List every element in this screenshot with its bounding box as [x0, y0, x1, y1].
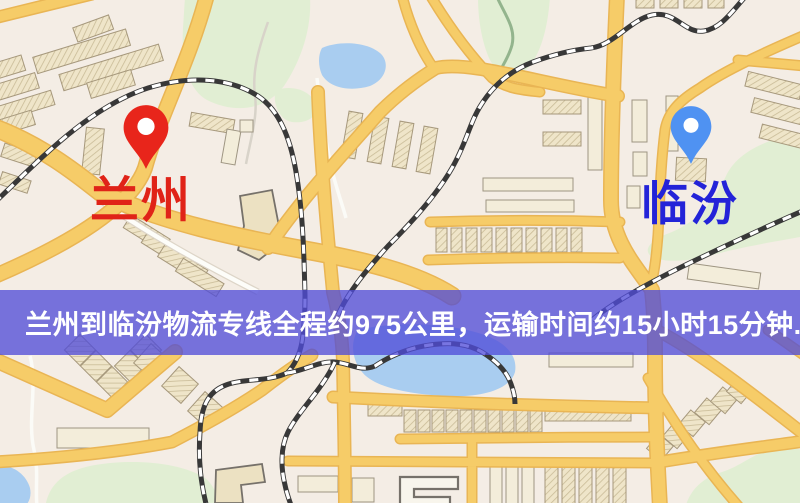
route-info-banner: 兰州到临汾物流专线全程约975公里，运输时间约15小时15分钟.: [0, 290, 800, 355]
origin-city-label: 兰州: [90, 177, 192, 226]
map-graphic: [0, 0, 800, 503]
route-info-text: 兰州到临汾物流专线全程约975公里，运输时间约15小时15分钟.: [0, 303, 800, 342]
logistics-route-map: 兰州 临汾 兰州到临汾物流专线全程约975公里，运输时间约15小时15分钟.: [0, 0, 800, 503]
destination-pin-icon[interactable]: [669, 105, 713, 165]
origin-pin-icon[interactable]: [122, 104, 170, 170]
destination-city-label: 临汾: [641, 180, 739, 227]
